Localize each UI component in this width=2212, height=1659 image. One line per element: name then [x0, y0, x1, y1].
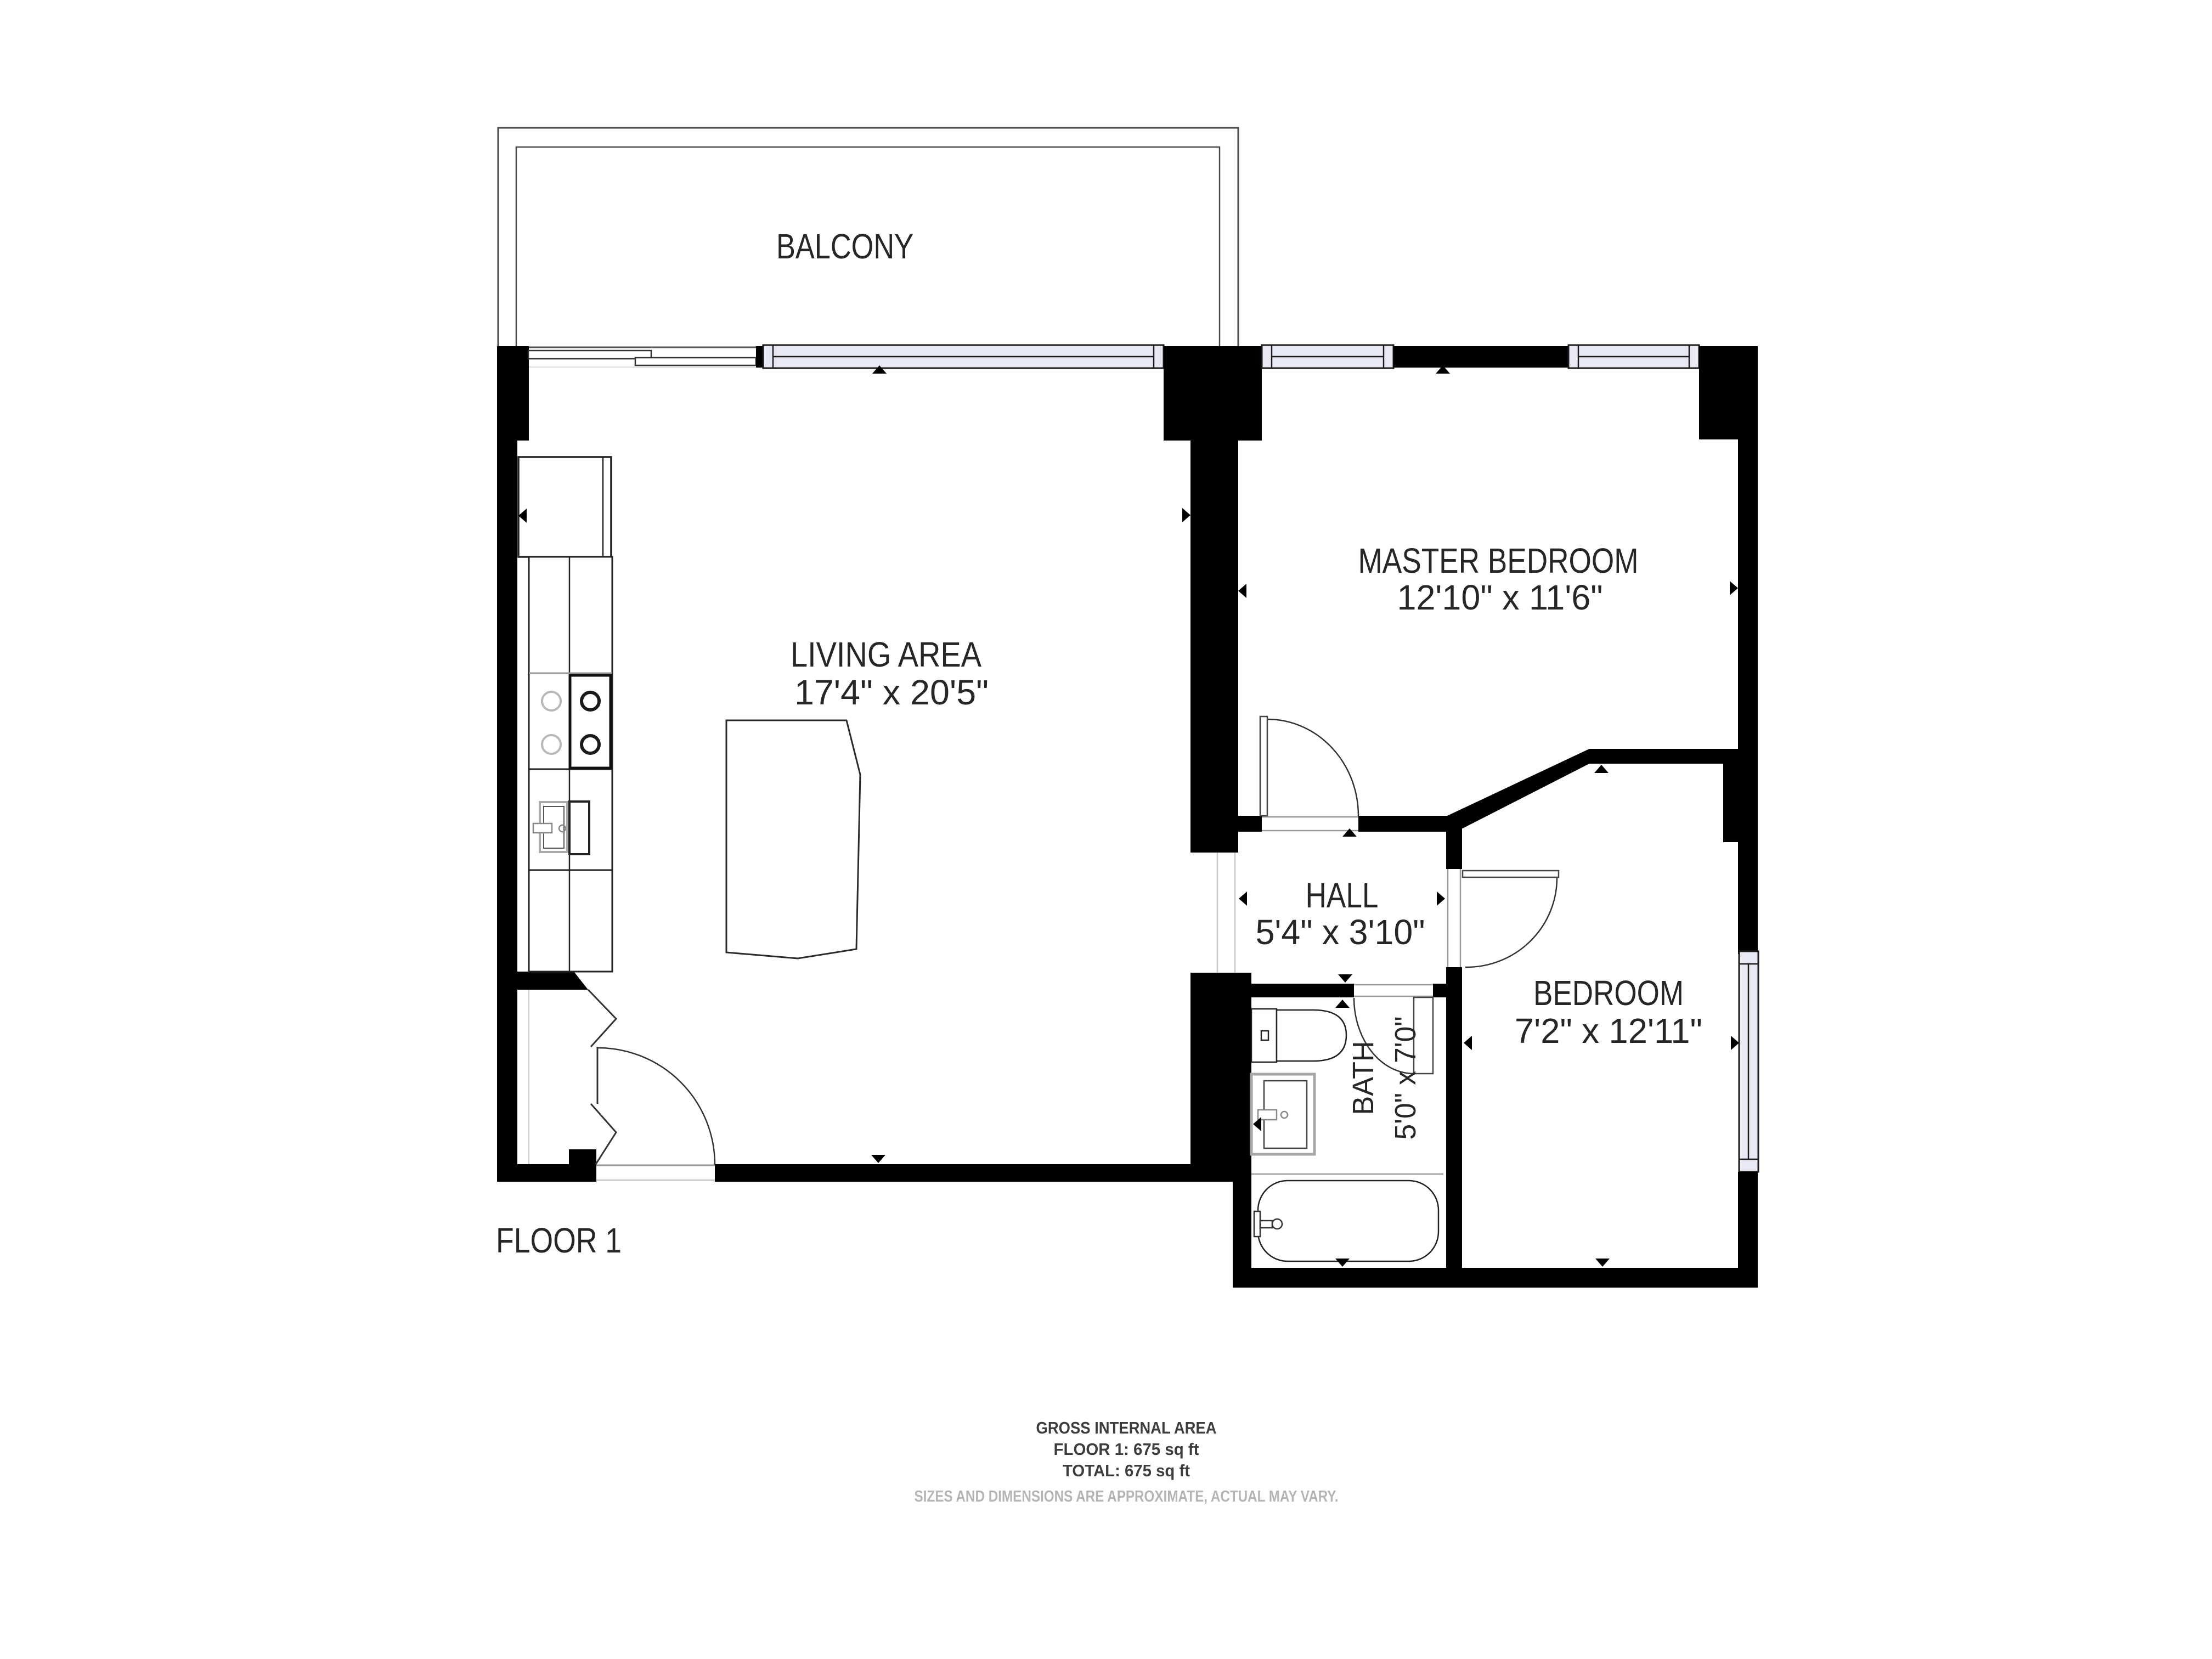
svg-text:GROSS INTERNAL AREA: GROSS INTERNAL AREA [1036, 1418, 1217, 1437]
svg-text:LIVING AREA: LIVING AREA [791, 635, 981, 674]
svg-text:TOTAL: 675 sq ft: TOTAL: 675 sq ft [1063, 1461, 1190, 1480]
svg-text:HALL: HALL [1306, 876, 1379, 915]
svg-text:BEDROOM: BEDROOM [1533, 973, 1684, 1013]
svg-text:BALCONY: BALCONY [776, 227, 913, 266]
svg-text:5'4" x 3'10": 5'4" x 3'10" [1256, 912, 1425, 952]
svg-text:FLOOR 1: 675 sq ft: FLOOR 1: 675 sq ft [1054, 1440, 1199, 1459]
svg-text:SIZES AND DIMENSIONS ARE APPRO: SIZES AND DIMENSIONS ARE APPROXIMATE, AC… [915, 1488, 1339, 1505]
svg-text:12'10" x 11'6": 12'10" x 11'6" [1397, 578, 1603, 617]
svg-text:7'2" x 12'11": 7'2" x 12'11" [1515, 1011, 1702, 1051]
svg-text:MASTER BEDROOM: MASTER BEDROOM [1358, 541, 1639, 580]
svg-text:FLOOR 1: FLOOR 1 [496, 1221, 622, 1260]
svg-text:BATH: BATH [1347, 1041, 1380, 1115]
svg-text:5'0" x 7'0": 5'0" x 7'0" [1389, 1017, 1422, 1140]
svg-text:17'4" x 20'5": 17'4" x 20'5" [794, 673, 989, 712]
